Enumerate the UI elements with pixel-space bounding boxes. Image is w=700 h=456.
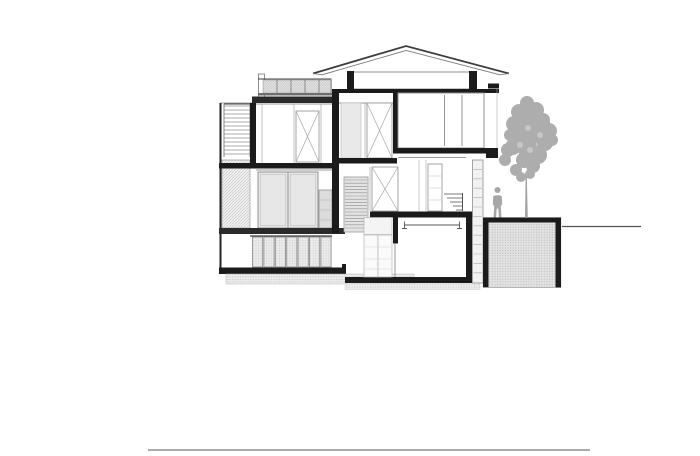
interior-stairs: [444, 194, 462, 210]
railing-bottom-rail: [258, 93, 332, 96]
upper-floor-slab-right: [393, 148, 490, 154]
lower-bedroom: [345, 212, 480, 290]
interior-door: [428, 164, 442, 211]
stair-steps: [224, 106, 250, 154]
upper-floor-slab-left: [339, 158, 397, 164]
upper-room: [398, 93, 484, 148]
door-frame: [419, 160, 426, 211]
section-drawing: [0, 0, 700, 456]
ground: [483, 218, 641, 288]
curtain-rail: [402, 222, 462, 229]
terrace-slab: [252, 97, 339, 104]
entourage: [493, 96, 558, 218]
foundation-base: [219, 268, 342, 275]
person-silhouette: [493, 187, 502, 218]
architectural-section-canvas: [0, 0, 700, 456]
second-floor-room: [256, 104, 332, 163]
ground-block-cap: [483, 218, 561, 223]
second-floor-slab: [219, 163, 339, 169]
wall-face-panel: [341, 103, 361, 158]
bedroom-ceiling-slab: [370, 212, 473, 218]
tree-silhouette: [499, 96, 558, 218]
parapet-cap: [488, 84, 499, 89]
ground-block-post-right: [556, 218, 562, 288]
interior-wall: [393, 92, 398, 148]
external-stair: [221, 103, 253, 268]
hipped-roof: [313, 46, 509, 75]
bedroom-left-wall: [393, 218, 398, 244]
second-floor-wall: [250, 103, 256, 168]
retaining-ground-block: [483, 218, 561, 288]
bedroom-closet: [364, 218, 392, 278]
ceiling-slab: [339, 89, 499, 93]
right-block: [332, 84, 499, 290]
facade-shutter-column: [473, 160, 484, 283]
ground-block-post-left: [483, 218, 489, 288]
narrow-door-panel: [319, 190, 332, 228]
stair-balustrade-hatch: [222, 160, 250, 228]
middle-level: [344, 158, 473, 233]
under-slab-hatch-right: [345, 284, 480, 290]
sliding-glass-door: [258, 172, 288, 228]
bedroom-right-wall: [466, 212, 472, 284]
first-floor-room: [256, 170, 332, 228]
first-floor-slab: [219, 228, 345, 234]
right-block-left-wall: [332, 89, 339, 233]
bedroom-floor-slab: [345, 277, 472, 283]
upper-level: [339, 92, 490, 164]
clerestory-post-left: [347, 71, 354, 90]
ground-floor-folding-doors: [250, 236, 332, 267]
clerestory-band: [347, 71, 477, 90]
sliding-glass-door: [288, 172, 318, 228]
clerestory-post-right: [469, 71, 477, 90]
roof-terrace-railing: [220, 74, 339, 103]
railing-mesh: [263, 80, 332, 93]
